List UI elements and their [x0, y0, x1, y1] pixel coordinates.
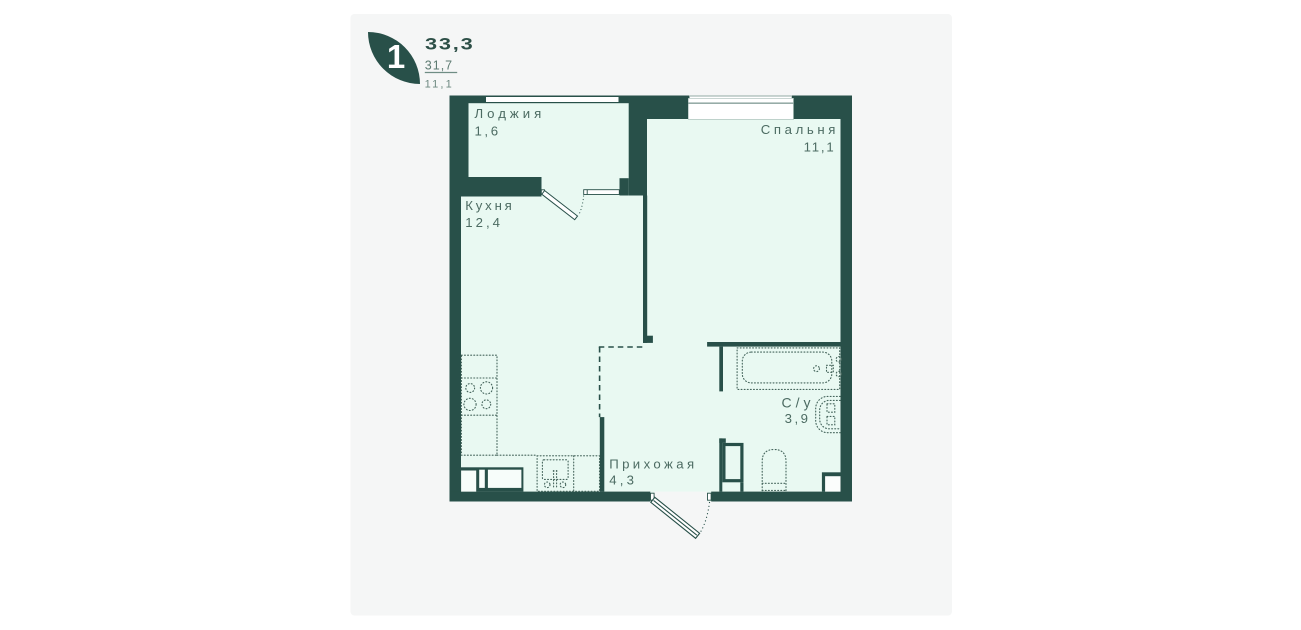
svg-text:1,6: 1,6: [475, 124, 501, 139]
svg-text:3,9: 3,9: [785, 411, 811, 426]
svg-text:Лоджия: Лоджия: [475, 106, 546, 121]
svg-text:33,3: 33,3: [425, 35, 475, 54]
svg-text:31,7: 31,7: [425, 59, 453, 73]
svg-text:С/у: С/у: [782, 394, 815, 410]
svg-text:Кухня: Кухня: [465, 198, 514, 213]
svg-text:12,4: 12,4: [465, 215, 503, 230]
svg-text:1: 1: [387, 38, 405, 75]
svg-text:11,1: 11,1: [804, 140, 836, 155]
svg-text:4,3: 4,3: [609, 473, 637, 488]
svg-text:Спальня: Спальня: [761, 122, 839, 137]
svg-text:11,1: 11,1: [425, 79, 454, 91]
svg-text:Прихожая: Прихожая: [609, 456, 697, 471]
